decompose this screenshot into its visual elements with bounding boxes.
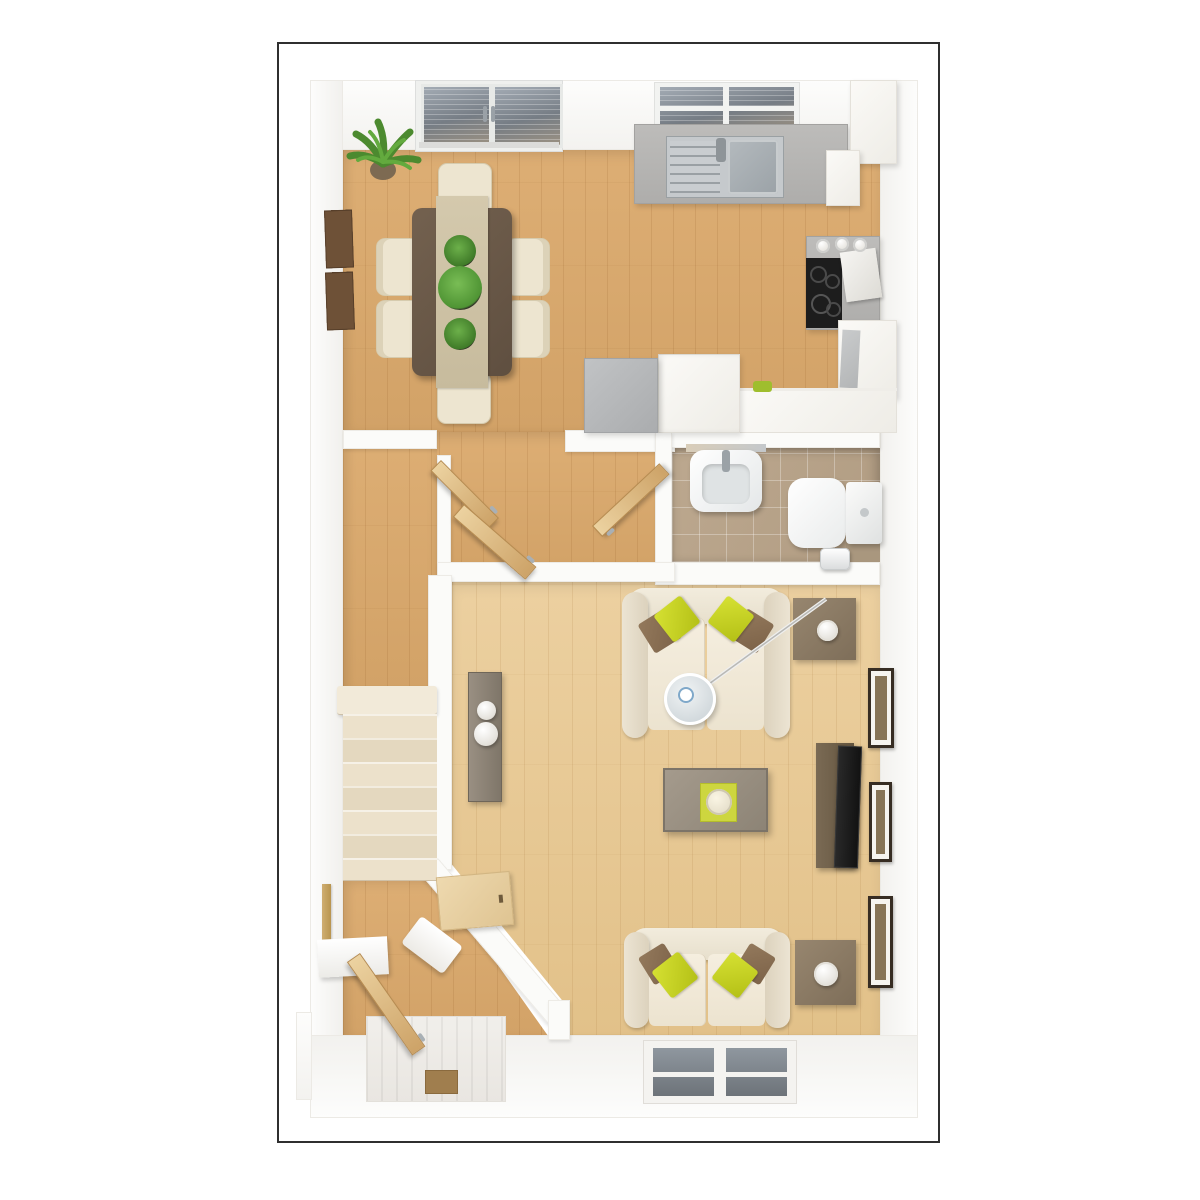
mug-icon: [678, 687, 694, 703]
coffee-table: [663, 768, 768, 832]
door-mat: [425, 1070, 458, 1094]
tv-screen: [834, 746, 862, 869]
wall-frame-icon: [868, 896, 893, 988]
wall-frame-icon: [869, 782, 892, 862]
wall-frame-icon: [868, 668, 894, 748]
desk-handle: [499, 895, 504, 903]
arc-lamp-icon: [0, 0, 1200, 1200]
candle-bowl: [706, 789, 732, 815]
glass-side-table: [664, 673, 716, 725]
desk-nook: [436, 871, 514, 931]
floorplan-canvas: [0, 0, 1200, 1200]
